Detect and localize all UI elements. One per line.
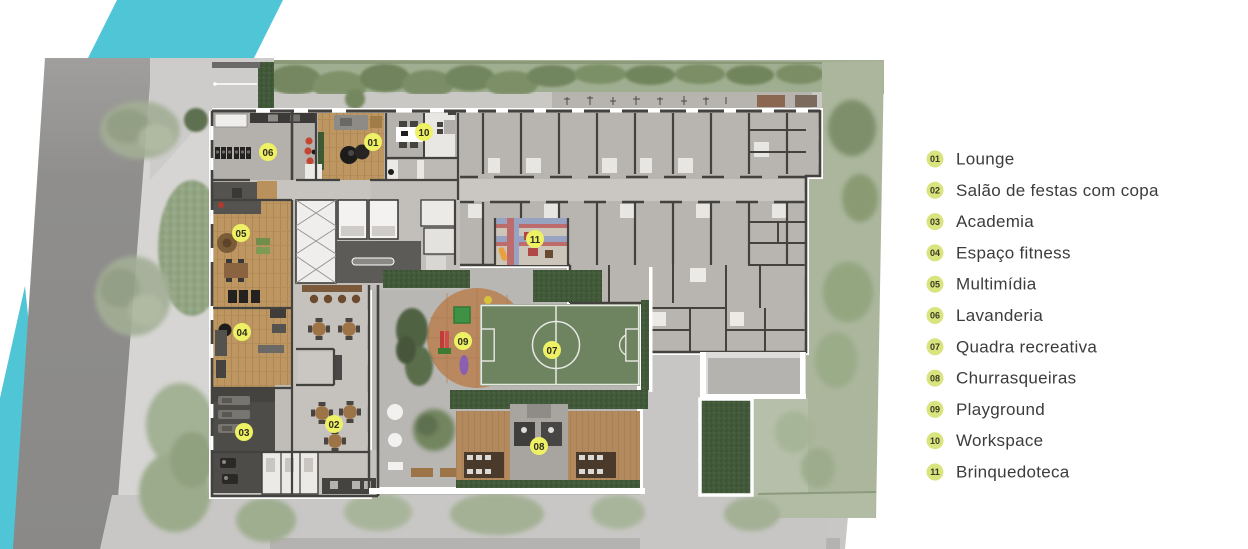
- svg-text:Lavanderia: Lavanderia: [956, 306, 1043, 325]
- svg-text:Playground: Playground: [956, 400, 1045, 419]
- svg-text:Quadra recreativa: Quadra recreativa: [956, 337, 1097, 356]
- svg-text:05: 05: [236, 229, 247, 240]
- svg-text:06: 06: [930, 311, 940, 321]
- svg-text:10: 10: [930, 436, 940, 446]
- svg-text:Workspace: Workspace: [956, 431, 1043, 450]
- svg-text:Churrasqueiras: Churrasqueiras: [956, 369, 1076, 388]
- svg-text:03: 03: [930, 217, 940, 227]
- svg-text:02: 02: [930, 186, 940, 196]
- svg-text:11: 11: [930, 467, 940, 477]
- svg-text:Salão de festas com copa: Salão de festas com copa: [956, 181, 1159, 200]
- svg-text:04: 04: [930, 248, 940, 258]
- svg-text:05: 05: [930, 279, 940, 289]
- svg-text:07: 07: [547, 346, 558, 357]
- svg-text:11: 11: [530, 235, 541, 246]
- svg-text:06: 06: [263, 148, 274, 159]
- svg-text:Espaço fitness: Espaço fitness: [956, 243, 1071, 262]
- svg-text:01: 01: [930, 154, 940, 164]
- svg-text:04: 04: [237, 328, 248, 339]
- svg-text:10: 10: [419, 128, 430, 139]
- svg-text:Multimídia: Multimídia: [956, 275, 1037, 294]
- svg-text:03: 03: [239, 428, 250, 439]
- svg-text:07: 07: [930, 342, 940, 352]
- svg-text:Academia: Academia: [956, 212, 1034, 231]
- svg-text:08: 08: [534, 442, 545, 453]
- svg-text:Lounge: Lounge: [956, 150, 1015, 169]
- svg-text:02: 02: [329, 420, 340, 431]
- svg-text:09: 09: [930, 405, 940, 415]
- svg-text:01: 01: [368, 138, 379, 149]
- svg-text:Brinquedoteca: Brinquedoteca: [956, 463, 1070, 482]
- svg-text:09: 09: [458, 337, 469, 348]
- svg-text:08: 08: [930, 373, 940, 383]
